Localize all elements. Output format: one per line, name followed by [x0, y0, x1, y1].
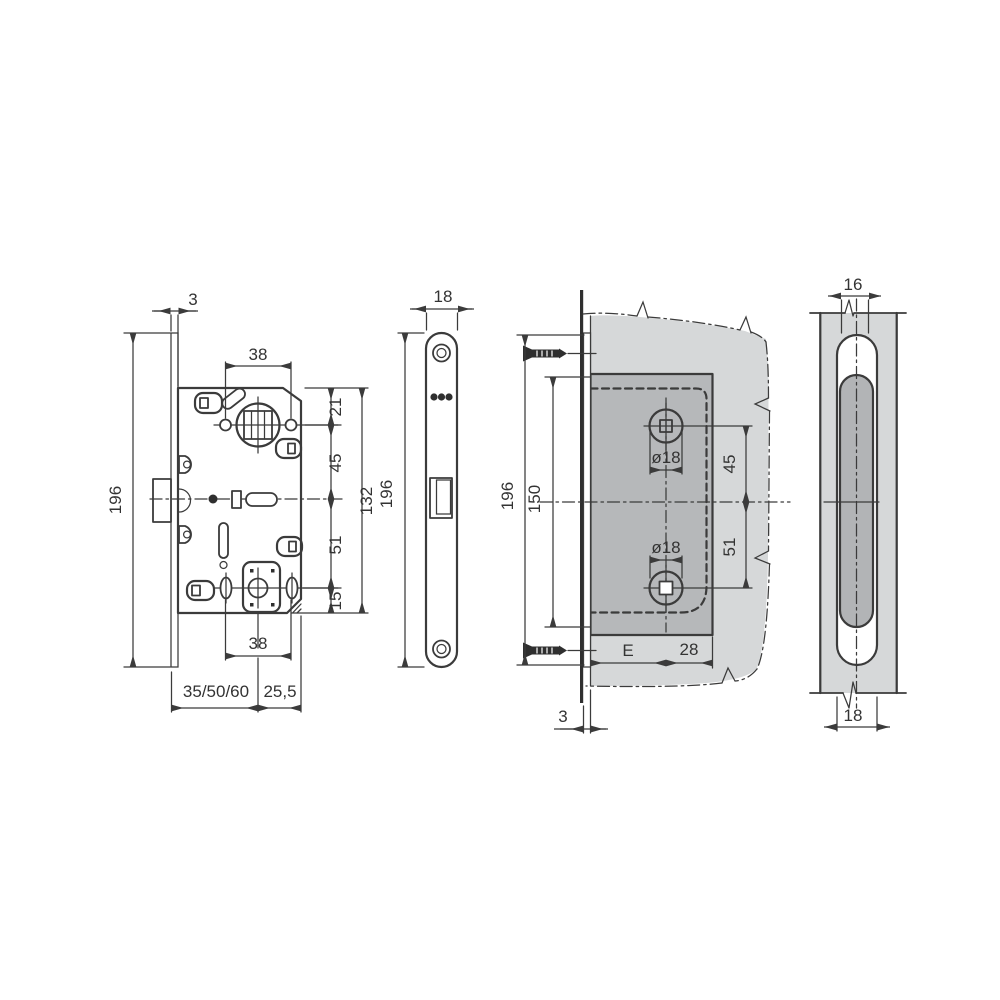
svg-text:38: 38 — [249, 345, 268, 364]
svg-text:3: 3 — [188, 290, 197, 309]
faceplate-side — [584, 333, 591, 667]
lock-body-side-view: 3 38 196 21 45 51 15 13 — [106, 290, 376, 712]
svg-text:16: 16 — [844, 275, 863, 294]
faceplate-front-view: 18 196 — [377, 287, 474, 667]
svg-text:E: E — [622, 641, 633, 660]
magnet-vent-dots — [430, 393, 452, 400]
drawing-canvas: 3 38 196 21 45 51 15 13 — [0, 0, 1000, 1000]
lock-technical-drawing: 3 38 196 21 45 51 15 13 — [0, 0, 1000, 1000]
svg-text:38: 38 — [249, 634, 268, 653]
svg-text:51: 51 — [326, 536, 345, 555]
svg-text:ø18: ø18 — [651, 448, 680, 467]
edge-clip-top — [179, 456, 191, 473]
svg-text:45: 45 — [720, 455, 739, 474]
svg-text:18: 18 — [434, 287, 453, 306]
dim-backset-row: 35/50/60 25,5 — [172, 616, 302, 712]
svg-text:ø18: ø18 — [651, 538, 680, 557]
latch-window — [430, 478, 452, 518]
svg-text:35/50/60: 35/50/60 — [183, 682, 249, 701]
screw-dot — [209, 495, 218, 504]
svg-text:3: 3 — [558, 707, 567, 726]
dim-chain-right: 21 45 51 15 132 — [291, 388, 376, 613]
svg-text:196: 196 — [377, 480, 396, 508]
door-edge-section-view: 16 18 — [810, 275, 906, 731]
slide-slot — [246, 493, 277, 506]
svg-text:28: 28 — [680, 640, 699, 659]
svg-text:196: 196 — [498, 482, 517, 510]
dim-plate-height: 196 — [377, 333, 424, 667]
svg-text:21: 21 — [326, 398, 345, 417]
svg-text:51: 51 — [720, 538, 739, 557]
svg-text:150: 150 — [525, 485, 544, 513]
svg-text:132: 132 — [357, 487, 376, 515]
dim-recess-width: 18 — [824, 697, 890, 731]
screw-hole-right — [286, 420, 297, 431]
edge-clip-bottom — [179, 526, 191, 543]
small-block — [232, 491, 241, 508]
dim-plate-width: 18 — [410, 287, 474, 330]
svg-text:196: 196 — [106, 486, 125, 514]
svg-text:15: 15 — [326, 592, 345, 611]
door-edge-line — [580, 290, 583, 703]
svg-text:45: 45 — [326, 454, 345, 473]
door-installation-view: ø18 ø18 196 150 — [498, 290, 790, 733]
spring-slot — [219, 523, 228, 558]
door-top-edge — [810, 300, 906, 316]
magnet-bolt — [153, 479, 171, 522]
svg-text:25,5: 25,5 — [263, 682, 296, 701]
svg-text:18: 18 — [844, 706, 863, 725]
screw-hole-left — [220, 420, 231, 431]
